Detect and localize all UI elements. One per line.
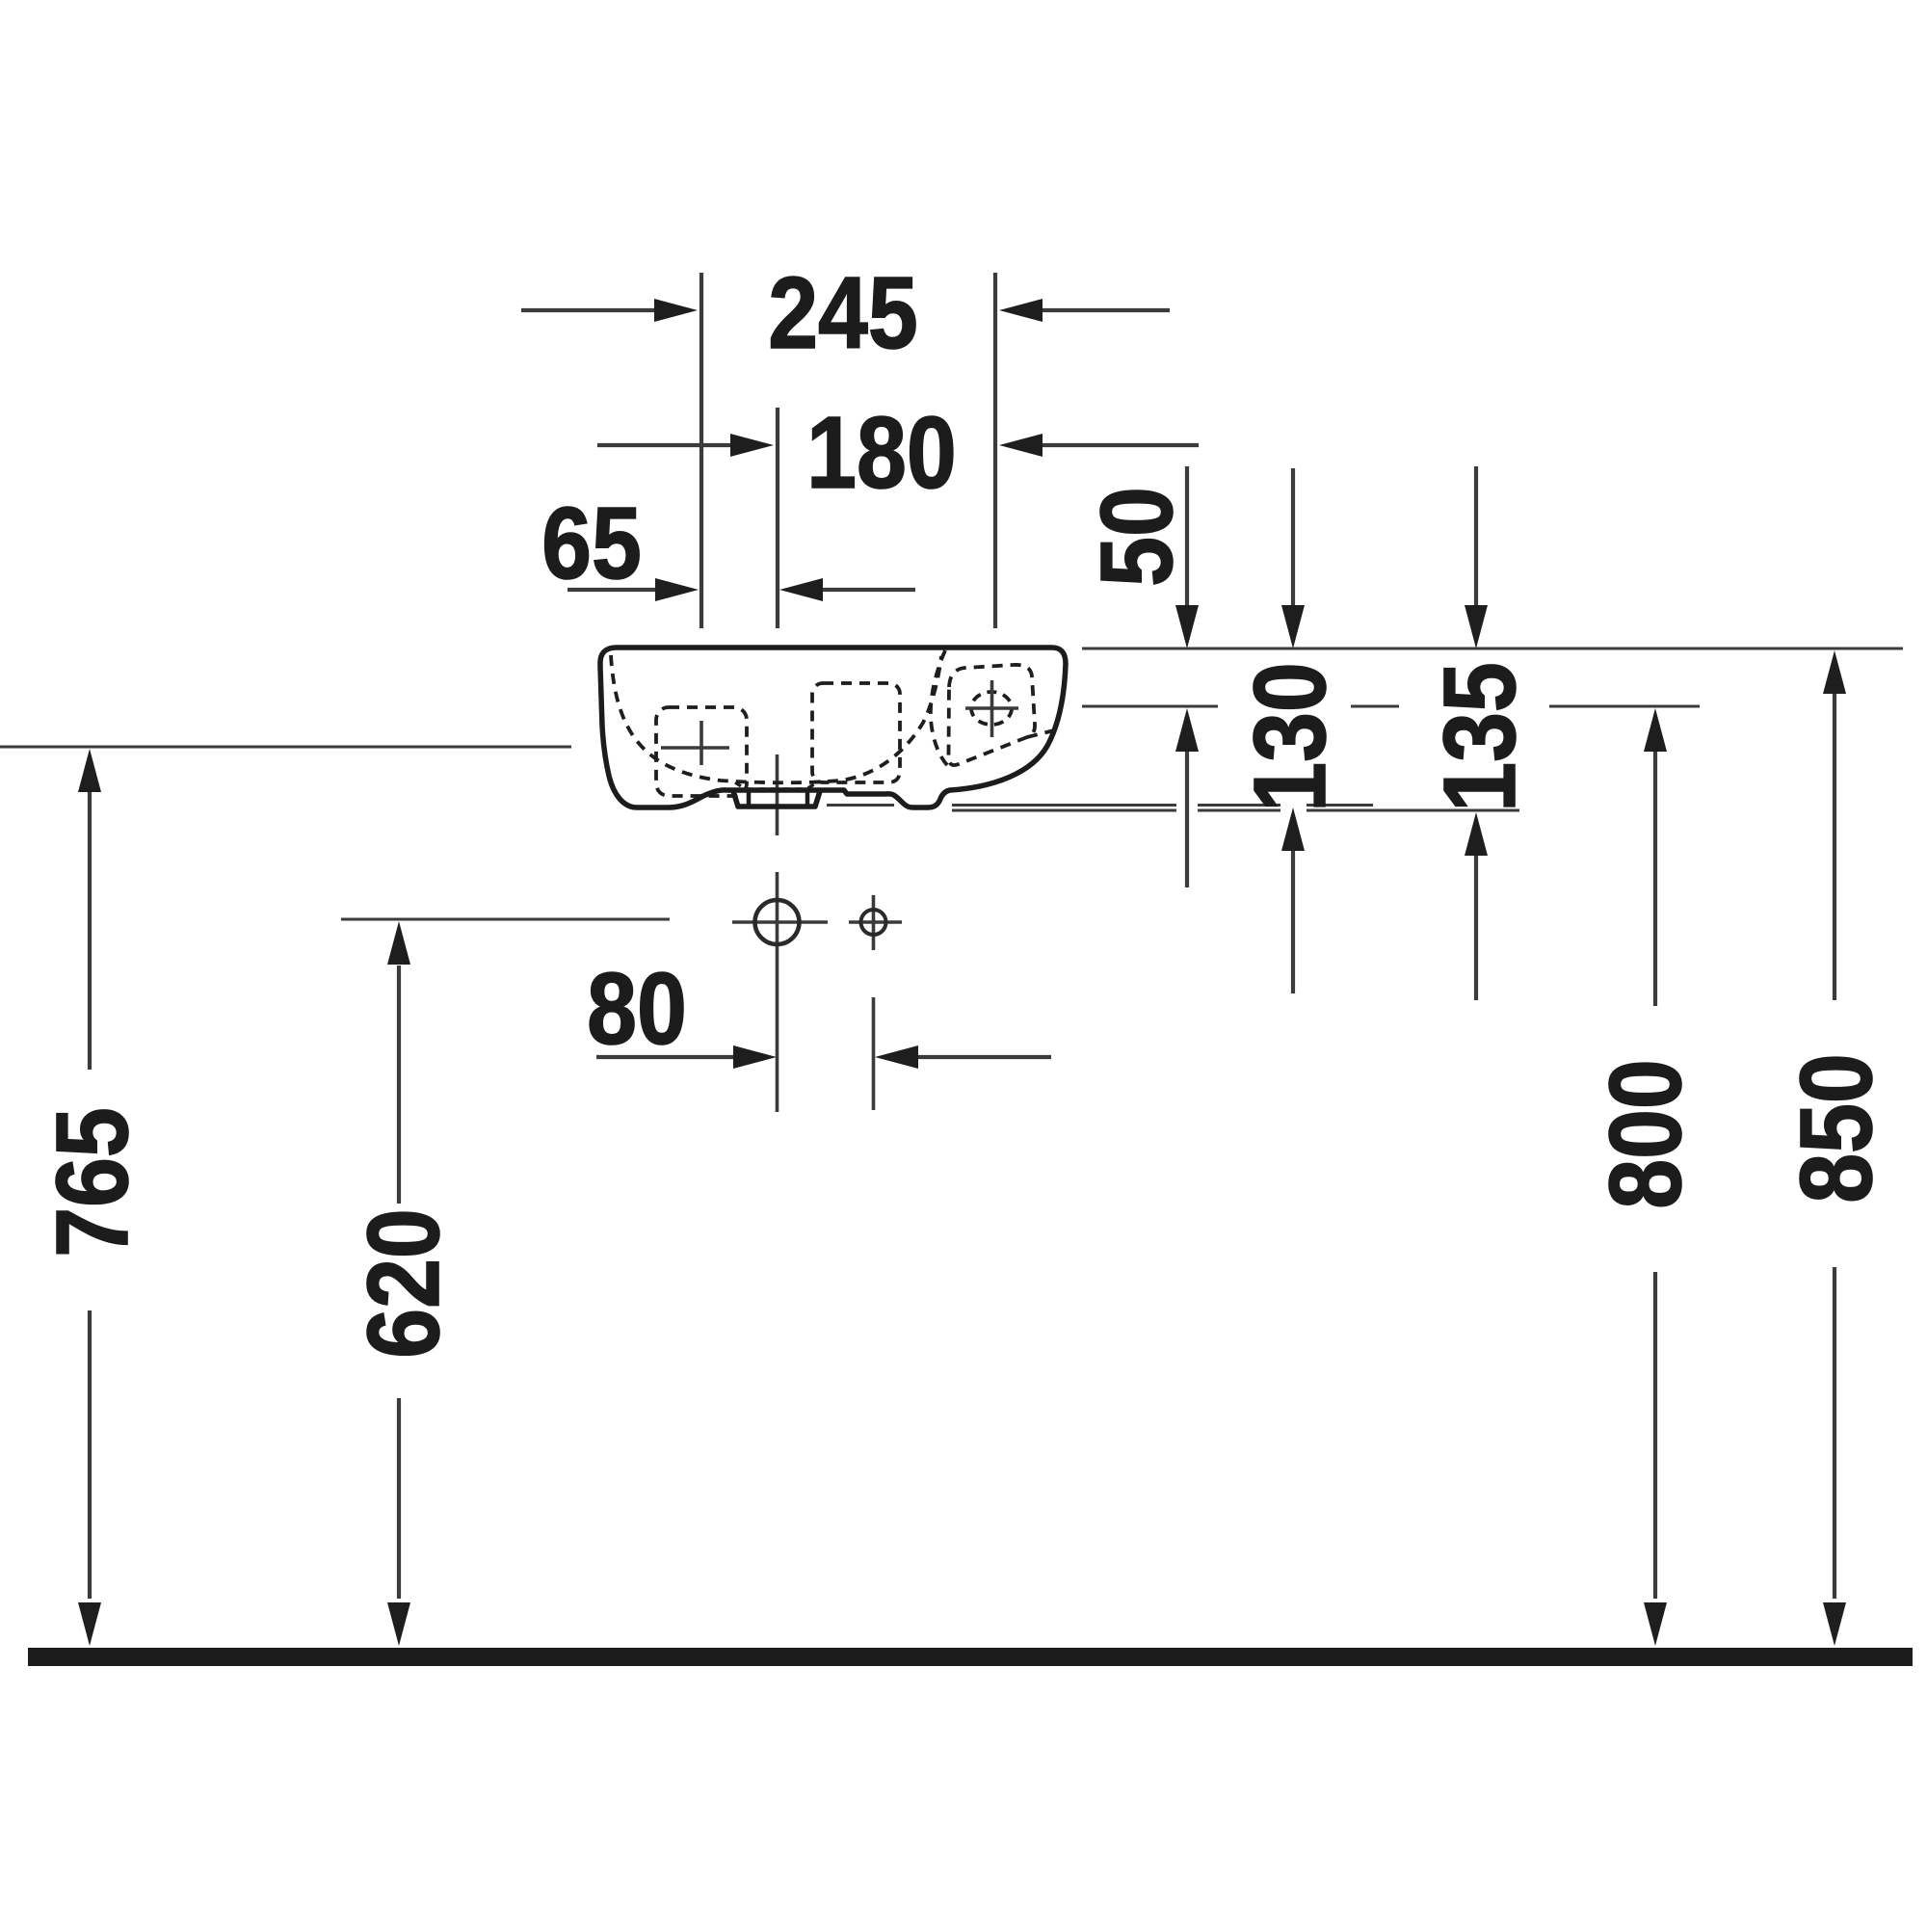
svg-text:620: 620 — [348, 1208, 462, 1359]
svg-text:245: 245 — [768, 257, 918, 371]
svg-text:80: 80 — [587, 953, 687, 1067]
svg-text:765: 765 — [37, 1107, 150, 1257]
svg-text:800: 800 — [1590, 1059, 1703, 1209]
svg-text:180: 180 — [806, 397, 957, 511]
svg-text:135: 135 — [1424, 662, 1538, 812]
svg-text:130: 130 — [1234, 662, 1348, 812]
svg-text:50: 50 — [1081, 487, 1195, 587]
svg-text:850: 850 — [1781, 1053, 1894, 1204]
svg-text:65: 65 — [541, 488, 642, 601]
